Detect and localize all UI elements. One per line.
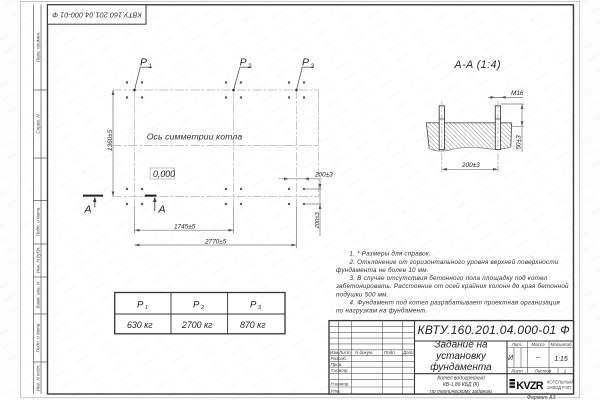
svg-text:по нагрузкам на фундамент.: по нагрузкам на фундамент. [336,307,428,315]
svg-text:3. В случае отсутствия бетонно: 3. В случае отсутствия бетонного пола пл… [350,274,548,282]
svg-text:1: 1 [145,305,148,311]
svg-text:установку: установку [435,351,487,362]
svg-text:1360±5: 1360±5 [107,129,114,151]
svg-text:Разраб.: Разраб. [331,356,347,361]
svg-text:Масштаб: Масштаб [550,342,571,347]
svg-text:Листов: Листов [534,368,552,373]
svg-text:50±3: 50±3 [516,135,523,150]
svg-text:подушки 500 мм.: подушки 500 мм. [336,290,389,298]
svg-text:200±3: 200±3 [314,171,333,178]
svg-text:фундамента не более 10 мм.: фундамента не более 10 мм. [336,266,429,274]
svg-text:P: P [302,57,309,69]
svg-text:N докум.: N докум. [355,350,373,355]
svg-text:Котел водогрейный: Котел водогрейный [437,374,485,381]
svg-text:2. Отклонение от горизонтально: 2. Отклонение от горизонтального уровня … [349,258,559,266]
svg-text:Перв. примен.: Перв. примен. [36,32,41,63]
svg-text:P: P [193,300,200,311]
svg-text:200±3: 200±3 [315,211,321,229]
svg-text:870 кг: 870 кг [240,320,266,330]
svg-text:Формат А3: Формат А3 [527,395,555,400]
svg-text:КВТУ.160.201.04.000-01 Ф: КВТУ.160.201.04.000-01 Ф [52,11,142,20]
svg-text:Лит.: Лит. [511,342,523,347]
svg-text:1: 1 [149,64,152,70]
svg-text:Т.контр.: Т.контр. [331,368,349,373]
svg-text:200±3: 200±3 [461,162,480,169]
svg-text:630 кг: 630 кг [127,320,153,330]
svg-text:KVZR: KVZR [516,380,543,392]
svg-text:2: 2 [200,305,204,311]
svg-text:КОТЕЛЬНЫЙ: КОТЕЛЬНЫЙ [547,380,573,385]
svg-text:Лист: Лист [338,350,351,355]
svg-text:фундамента: фундамента [430,361,492,373]
svg-text:Инв. N дубл.: Инв. N дубл. [36,247,41,274]
svg-text:A: A [84,204,92,216]
svg-text:1. * Размеры для справок.: 1. * Размеры для справок. [350,250,431,258]
svg-text:Лист: Лист [510,368,523,373]
svg-text:4. Фундамент под котел разраба: 4. Фундамент под котел разрабатывает про… [350,299,561,307]
svg-text:КВ-1,86 КБД (К): КВ-1,86 КБД (К) [443,382,480,388]
svg-text:Взам. инв. N: Взам. инв. N [36,281,41,308]
svg-text:1745±5: 1745±5 [174,224,196,231]
svg-text:–: – [535,355,540,362]
svg-text:P: P [250,300,257,311]
svg-text:Масса: Масса [531,342,545,347]
svg-text:Справ. N: Справ. N [36,114,41,134]
svg-text:2: 2 [247,64,252,70]
svg-text:A-A (1:4): A-A (1:4) [454,59,502,71]
svg-text:1:15: 1:15 [554,356,568,363]
svg-text:0,000: 0,000 [153,169,175,179]
svg-text:Подп.: Подп. [384,350,396,355]
svg-text:КВТУ.160.201.04.000-01 Ф: КВТУ.160.201.04.000-01 Ф [418,323,571,337]
svg-text:P: P [140,57,147,69]
svg-text:Пров.: Пров. [331,362,343,367]
svg-text:M16: M16 [511,90,524,97]
svg-text:Н.контр.: Н.контр. [331,382,350,387]
svg-text:Инв. N подл.: Инв. N подл. [36,365,41,392]
svg-text:забетонировать. Расстояние от: забетонировать. Расстояние от осей крайн… [335,282,569,290]
svg-text:Задание на: Задание на [434,339,488,350]
svg-text:Ось симметрии котла: Ось симметрии котла [147,131,243,141]
svg-text:Дата: Дата [402,350,415,355]
svg-text:A: A [158,204,166,216]
svg-text:2770±5: 2770±5 [204,238,227,245]
svg-text:P: P [137,300,144,311]
svg-text:P: P [240,57,247,69]
svg-text:Подп. и дата: Подп. и дата [36,207,41,236]
svg-text:Утв.: Утв. [331,389,341,394]
svg-text:ЗАВОД РЭП: ЗАВОД РЭП [547,385,571,390]
svg-text:по техническому заданию: по техническому заданию [430,389,492,395]
svg-text:2700 кг: 2700 кг [181,320,213,330]
svg-text:Подп. и дата: Подп. и дата [36,323,41,352]
